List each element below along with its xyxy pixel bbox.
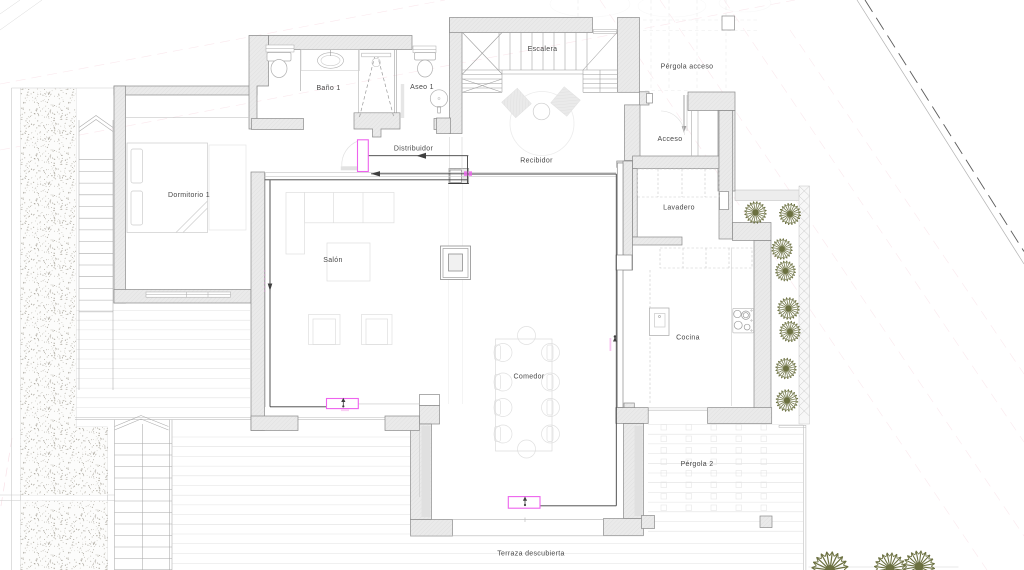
svg-text:Comedor: Comedor: [513, 374, 544, 381]
svg-text:Pérgola 2: Pérgola 2: [681, 461, 714, 468]
svg-text:Escalera: Escalera: [528, 46, 558, 53]
svg-text:Acceso: Acceso: [658, 136, 683, 143]
svg-text:Dormitorio 1: Dormitorio 1: [168, 192, 210, 199]
svg-text:Cocina: Cocina: [676, 335, 700, 342]
svg-text:Aseo 1: Aseo 1: [410, 84, 434, 91]
svg-text:Pérgola acceso: Pérgola acceso: [661, 64, 714, 71]
svg-text:Salón: Salón: [323, 257, 343, 264]
svg-text:Lavadero: Lavadero: [663, 205, 695, 212]
svg-text:Recibidor: Recibidor: [520, 158, 553, 165]
svg-text:Baño 1: Baño 1: [316, 85, 340, 92]
svg-text:Distribuidor: Distribuidor: [394, 146, 434, 153]
svg-text:Terraza descubierta: Terraza descubierta: [497, 551, 565, 558]
